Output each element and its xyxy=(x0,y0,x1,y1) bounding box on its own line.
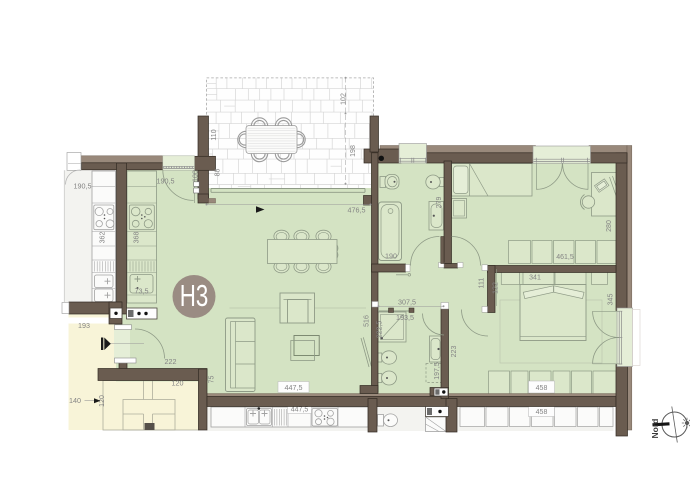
svg-text:100: 100 xyxy=(193,170,200,182)
svg-text:75: 75 xyxy=(209,376,216,384)
svg-text:198: 198 xyxy=(350,145,357,157)
svg-text:280: 280 xyxy=(606,220,613,232)
svg-text:197,5: 197,5 xyxy=(434,362,441,380)
svg-text:458: 458 xyxy=(536,409,548,416)
svg-text:H3: H3 xyxy=(180,278,209,312)
svg-text:73,5: 73,5 xyxy=(135,287,149,296)
svg-text:222,5: 222,5 xyxy=(377,321,384,339)
svg-text:458: 458 xyxy=(536,385,548,392)
svg-text:345: 345 xyxy=(608,294,615,306)
svg-text:362: 362 xyxy=(100,232,107,244)
svg-text:447,5: 447,5 xyxy=(285,383,303,392)
svg-text:193: 193 xyxy=(78,321,90,330)
svg-text:140: 140 xyxy=(69,396,81,405)
svg-text:447,5: 447,5 xyxy=(291,407,309,414)
svg-text:461,5: 461,5 xyxy=(556,254,574,261)
svg-text:190,5: 190,5 xyxy=(74,182,92,191)
svg-text:122: 122 xyxy=(493,282,500,294)
svg-text:110: 110 xyxy=(211,129,218,140)
svg-text:Nord: Nord xyxy=(650,419,660,439)
svg-text:120: 120 xyxy=(172,378,184,387)
svg-text:190,5: 190,5 xyxy=(157,177,175,186)
svg-text:307,5: 307,5 xyxy=(398,298,416,307)
svg-text:88: 88 xyxy=(215,169,222,177)
svg-text:102: 102 xyxy=(341,93,348,105)
svg-text:223: 223 xyxy=(451,346,458,358)
svg-text:193,5: 193,5 xyxy=(396,313,414,322)
svg-text:341: 341 xyxy=(529,275,541,282)
svg-text:368: 368 xyxy=(134,232,141,244)
svg-text:516: 516 xyxy=(364,315,371,327)
svg-text:190: 190 xyxy=(385,252,397,261)
svg-text:476,5: 476,5 xyxy=(348,206,366,215)
svg-text:111: 111 xyxy=(479,278,486,289)
svg-text:222: 222 xyxy=(165,357,177,366)
svg-text:279: 279 xyxy=(436,197,443,209)
svg-text:120: 120 xyxy=(99,395,106,407)
